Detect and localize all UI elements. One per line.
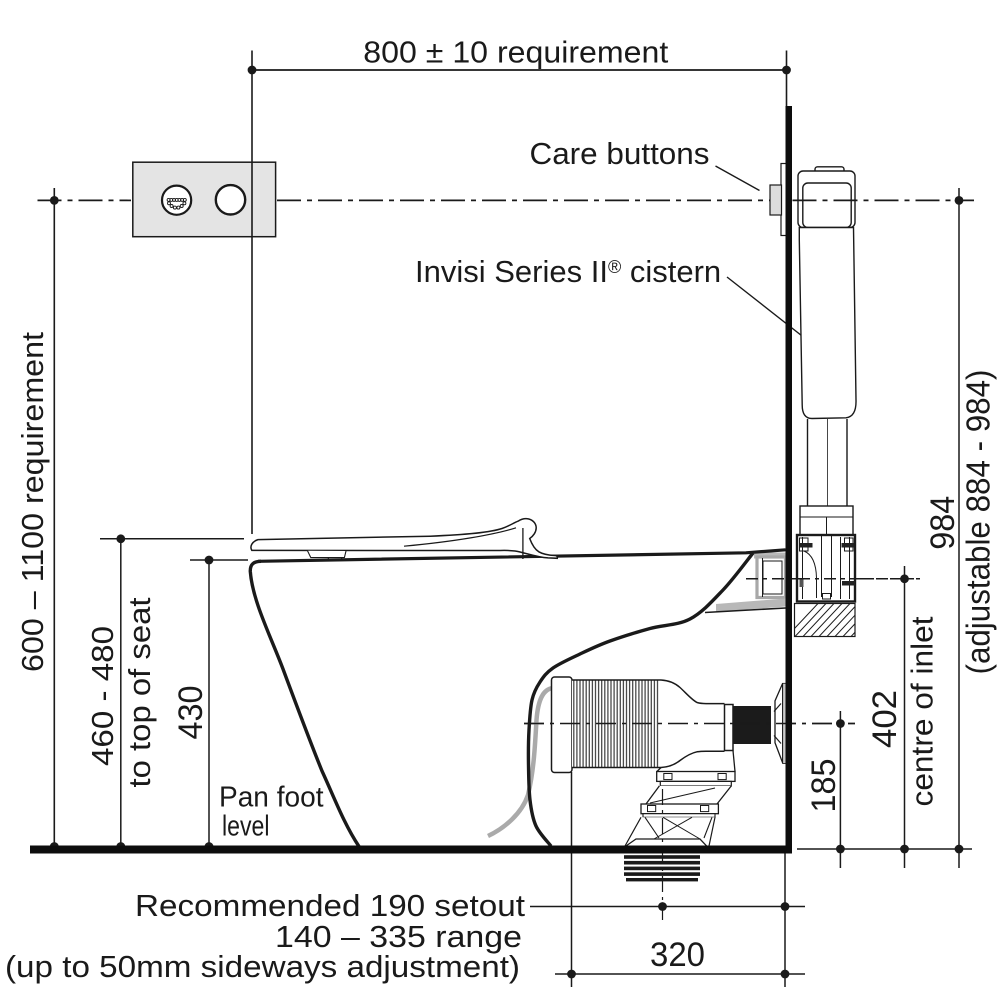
svg-text:185: 185 [805, 759, 843, 813]
svg-text:Invisi Series II® cistern: Invisi Series II® cistern [415, 254, 721, 289]
svg-text:to top of seat: to top of seat [122, 597, 157, 787]
svg-text:level: level [222, 811, 270, 843]
svg-text:320: 320 [650, 936, 705, 974]
svg-text:Recommended 190 setout: Recommended 190 setout [135, 888, 525, 923]
svg-text:Pan foot: Pan foot [219, 782, 324, 814]
svg-text:(adjustable 884 - 984): (adjustable 884 - 984) [960, 370, 997, 675]
svg-text:(up to 50mm sideways adjustmen: (up to 50mm sideways adjustment) [5, 949, 520, 984]
svg-text:402: 402 [866, 690, 904, 748]
svg-text:430: 430 [172, 686, 210, 740]
svg-text:800 ± 10 requirement: 800 ± 10 requirement [363, 35, 668, 70]
svg-text:600 – 1100 requirement: 600 – 1100 requirement [15, 332, 50, 672]
svg-text:984: 984 [924, 496, 962, 550]
svg-text:Care buttons: Care buttons [530, 136, 710, 171]
svg-text:centre of inlet: centre of inlet [905, 616, 940, 806]
svg-text:460 - 480: 460 - 480 [85, 626, 120, 766]
